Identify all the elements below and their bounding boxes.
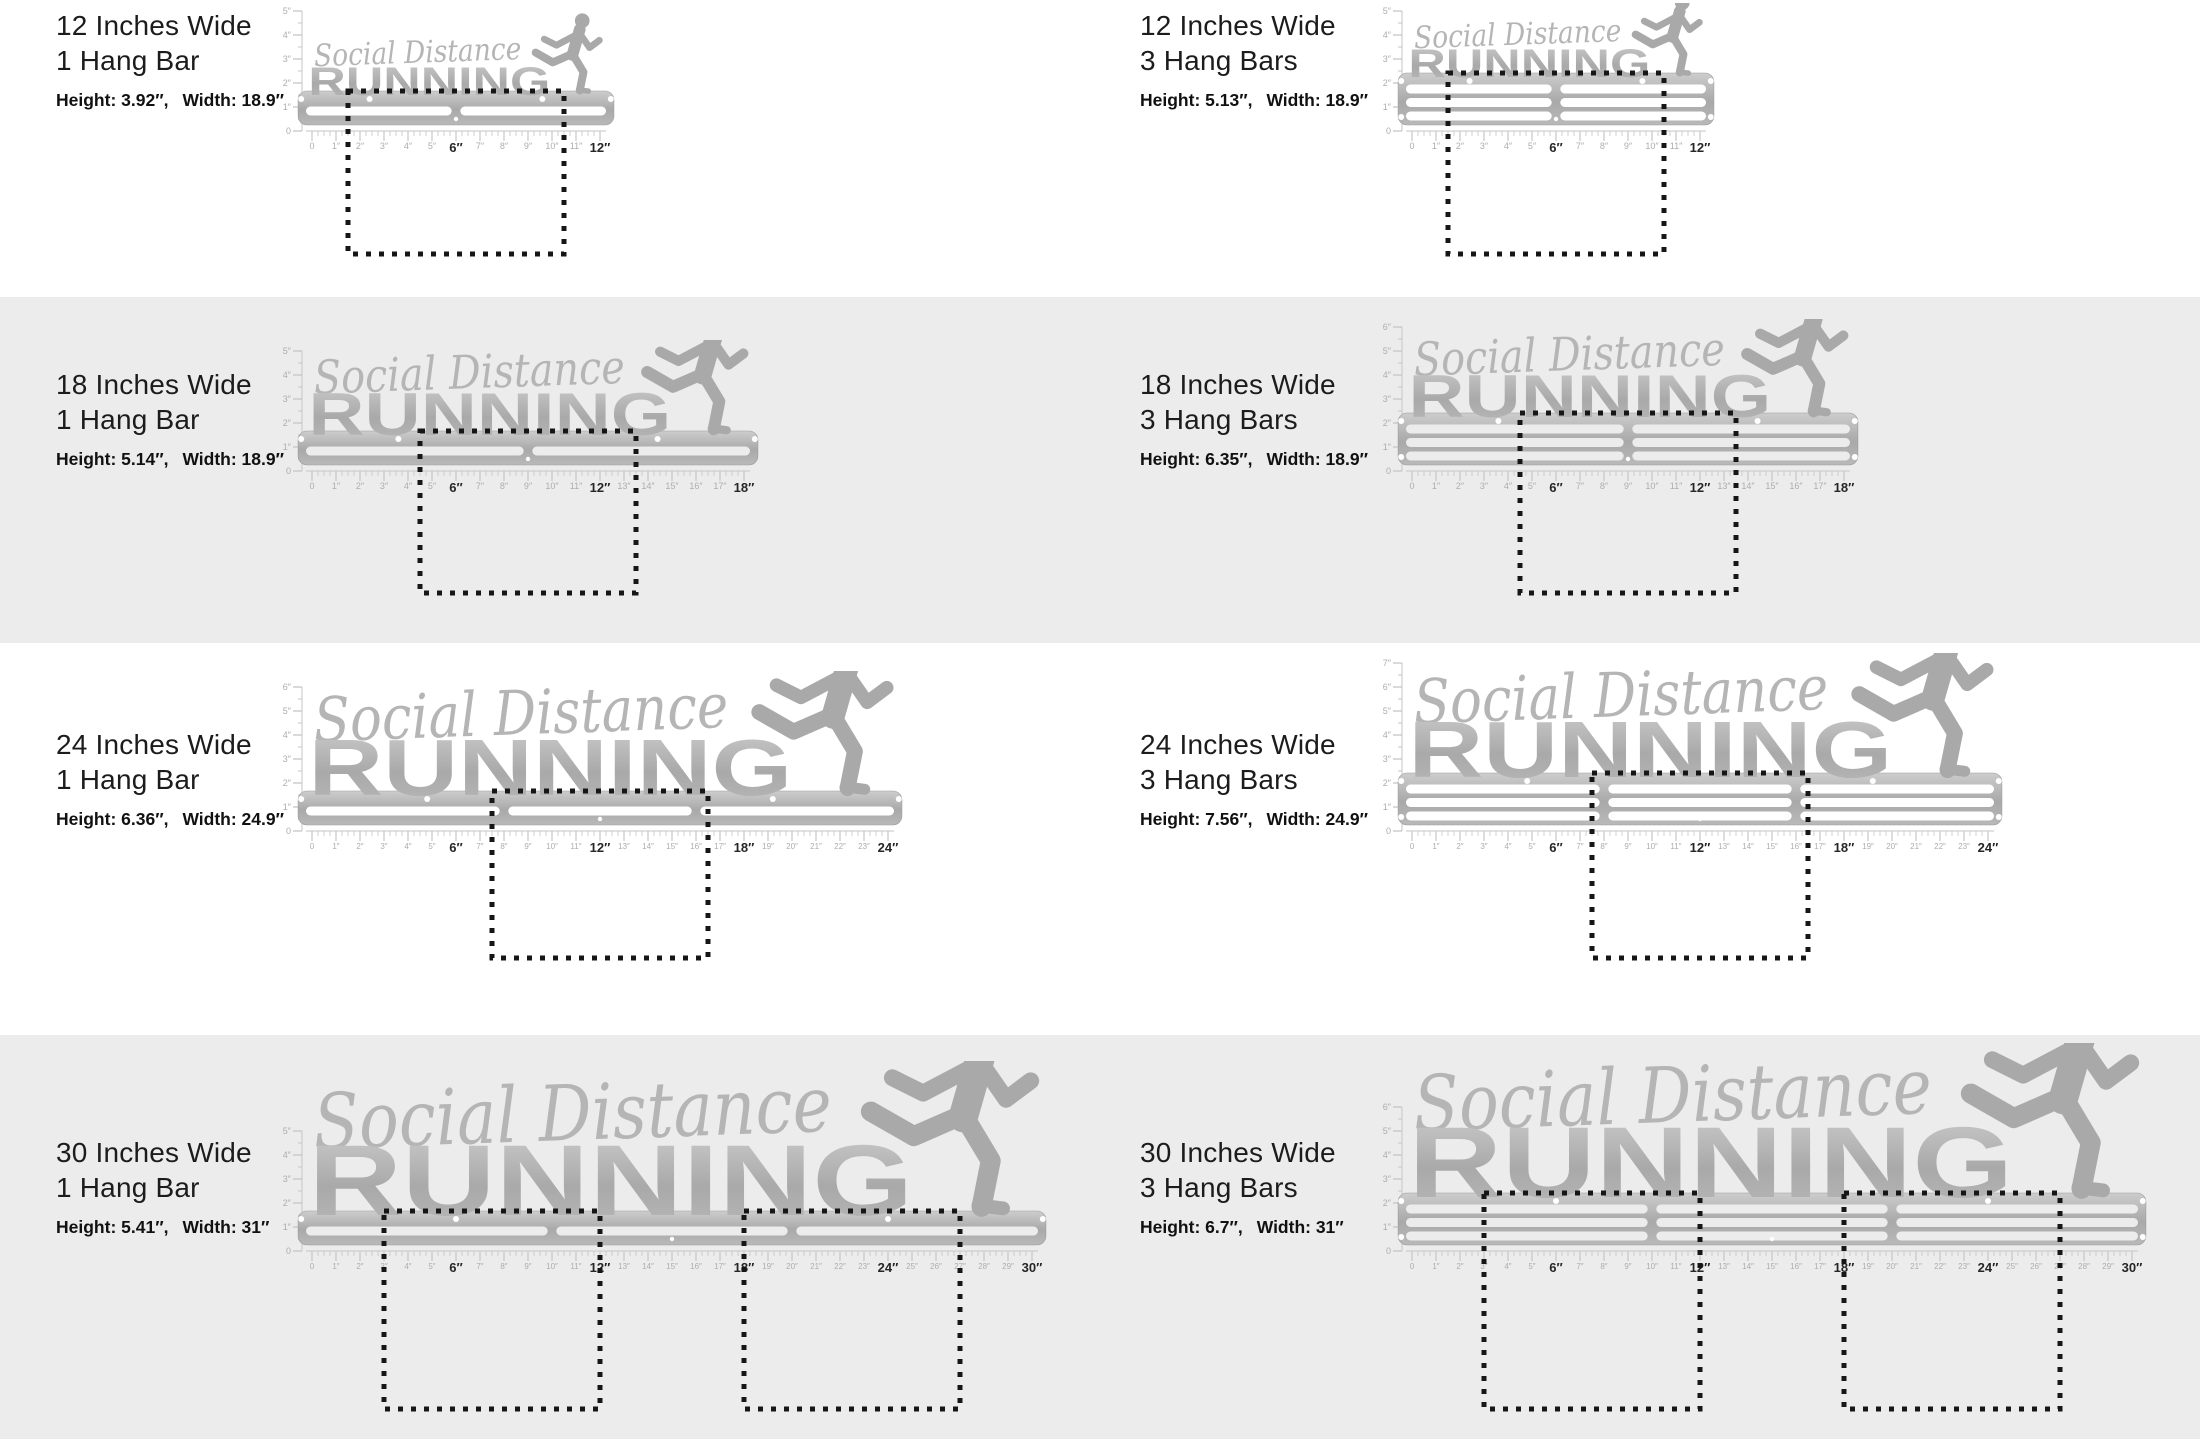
bars-title: 1 Hang Bar xyxy=(56,1170,269,1205)
svg-text:2″: 2″ xyxy=(1456,141,1465,151)
svg-text:15″: 15″ xyxy=(1766,1262,1778,1271)
svg-text:3″: 3″ xyxy=(1480,141,1489,151)
svg-text:15″: 15″ xyxy=(1766,842,1778,851)
svg-text:4″: 4″ xyxy=(1383,730,1392,740)
svg-text:7″: 7″ xyxy=(476,842,483,851)
svg-text:30″: 30″ xyxy=(1022,1260,1043,1275)
height-spec: Height: 5.14″, xyxy=(56,449,168,469)
svg-text:3″: 3″ xyxy=(1383,54,1392,64)
svg-text:21″: 21″ xyxy=(810,1262,822,1271)
svg-text:4″: 4″ xyxy=(1383,370,1392,380)
svg-text:6″: 6″ xyxy=(1383,322,1392,332)
svg-text:10″: 10″ xyxy=(546,1262,558,1271)
width-spec: Width: 18.9″ xyxy=(182,90,284,110)
bars-title: 3 Hang Bars xyxy=(1140,1170,1344,1205)
svg-text:24″: 24″ xyxy=(1978,1260,1999,1275)
svg-text:21″: 21″ xyxy=(810,842,822,851)
svg-text:8″: 8″ xyxy=(500,1262,507,1271)
svg-text:0: 0 xyxy=(1386,826,1391,836)
block-text: RUNNING xyxy=(1408,362,1771,430)
medal-hanger-diagram-24in-1bar: 01″2″3″4″5″6″Social DistanceRUNNING01″2″… xyxy=(272,671,928,972)
height-spec: Height: 5.13″, xyxy=(1140,90,1252,110)
svg-text:1″: 1″ xyxy=(1383,802,1392,812)
svg-text:26″: 26″ xyxy=(930,1262,942,1271)
dimension-spec: Height: 5.41″,Width: 31″ xyxy=(56,1217,269,1238)
dimension-spec: Height: 6.35″,Width: 18.9″ xyxy=(1140,449,1368,470)
svg-text:8″: 8″ xyxy=(1600,481,1609,491)
horizontal-ruler: 01″2″3″4″5″6″7″8″9″10″11″12″13″14″15″16″… xyxy=(1406,471,1854,495)
medal-hanger-diagram-18in-1bar: 01″2″3″4″5″Social DistanceRUNNING01″2″3″… xyxy=(272,340,784,607)
svg-text:23″: 23″ xyxy=(1958,842,1970,851)
medal-hanger-diagram-18in-3bar: 01″2″3″4″5″6″Social DistanceRUNNING01″2″… xyxy=(1372,319,1884,607)
svg-text:5″: 5″ xyxy=(283,1126,292,1136)
svg-text:2″: 2″ xyxy=(283,1198,292,1208)
svg-text:5″: 5″ xyxy=(283,6,292,16)
svg-text:2″: 2″ xyxy=(1456,842,1463,851)
svg-text:6″: 6″ xyxy=(449,1260,462,1275)
svg-text:24″: 24″ xyxy=(878,840,899,855)
svg-text:0: 0 xyxy=(309,481,314,491)
svg-text:8″: 8″ xyxy=(500,141,509,151)
block-text: RUNNING xyxy=(308,380,671,448)
svg-text:3″: 3″ xyxy=(283,394,292,404)
svg-text:13″: 13″ xyxy=(1718,1262,1730,1271)
svg-text:1″: 1″ xyxy=(283,802,292,812)
svg-text:5″: 5″ xyxy=(1383,1126,1392,1136)
svg-text:12″: 12″ xyxy=(590,480,611,495)
svg-text:3″: 3″ xyxy=(1383,1174,1392,1184)
svg-text:24″: 24″ xyxy=(1978,840,1999,855)
svg-text:17″: 17″ xyxy=(713,481,727,491)
svg-text:1″: 1″ xyxy=(332,141,341,151)
svg-text:1″: 1″ xyxy=(1383,442,1392,452)
svg-text:15″: 15″ xyxy=(666,1262,678,1271)
svg-text:8″: 8″ xyxy=(500,481,509,491)
svg-text:20″: 20″ xyxy=(1886,1262,1898,1271)
svg-text:0: 0 xyxy=(1386,126,1391,136)
svg-text:18″: 18″ xyxy=(734,480,755,495)
svg-text:3″: 3″ xyxy=(380,481,389,491)
svg-text:19″: 19″ xyxy=(762,1262,774,1271)
medal-hanger-diagram-30in-3bar: 01″2″3″4″5″6″Social DistanceRUNNING01″2″… xyxy=(1372,1043,2172,1423)
svg-text:0: 0 xyxy=(1410,842,1415,851)
svg-text:7″: 7″ xyxy=(476,1262,483,1271)
svg-text:1″: 1″ xyxy=(332,1262,339,1271)
svg-text:10″: 10″ xyxy=(546,842,558,851)
svg-text:18″: 18″ xyxy=(734,840,755,855)
svg-text:30″: 30″ xyxy=(2122,1260,2143,1275)
svg-text:0: 0 xyxy=(310,842,315,851)
row-band-1: 12 Inches Wide1 Hang BarHeight: 3.92″,Wi… xyxy=(0,0,2200,297)
svg-text:2″: 2″ xyxy=(356,1262,363,1271)
svg-text:11″: 11″ xyxy=(1670,1262,1681,1271)
svg-text:5″: 5″ xyxy=(1528,141,1537,151)
svg-text:21″: 21″ xyxy=(1910,1262,1922,1271)
block-text: RUNNING xyxy=(308,59,550,104)
svg-text:3″: 3″ xyxy=(380,141,389,151)
svg-text:5″: 5″ xyxy=(1528,481,1537,491)
svg-text:6″: 6″ xyxy=(1549,140,1562,155)
svg-text:3″: 3″ xyxy=(1480,481,1489,491)
svg-text:16″: 16″ xyxy=(1790,842,1802,851)
svg-text:1″: 1″ xyxy=(1432,842,1439,851)
svg-text:11″: 11″ xyxy=(1670,842,1681,851)
svg-text:3″: 3″ xyxy=(283,1174,292,1184)
svg-text:4″: 4″ xyxy=(283,370,292,380)
svg-text:1″: 1″ xyxy=(332,842,339,851)
width-spec: Width: 24.9″ xyxy=(182,809,284,829)
svg-text:17″: 17″ xyxy=(1813,481,1827,491)
svg-text:9″: 9″ xyxy=(1624,141,1633,151)
medal-hanger-diagram-12in-1bar: 01″2″3″4″5″Social DistanceRUNNING01″2″3″… xyxy=(272,3,640,268)
svg-text:5″: 5″ xyxy=(1528,1262,1535,1271)
height-spec: Height: 6.36″, xyxy=(56,809,168,829)
svg-text:6″: 6″ xyxy=(1383,682,1392,692)
bars-title: 1 Hang Bar xyxy=(56,43,284,78)
svg-text:8″: 8″ xyxy=(1600,1262,1607,1271)
svg-text:5″: 5″ xyxy=(428,1262,435,1271)
width-spec: Width: 18.9″ xyxy=(182,449,284,469)
svg-text:9″: 9″ xyxy=(524,481,533,491)
panel-label-12in-3bar: 12 Inches Wide3 Hang BarsHeight: 5.13″,W… xyxy=(1140,8,1368,111)
svg-text:14″: 14″ xyxy=(641,481,655,491)
svg-text:14″: 14″ xyxy=(642,842,654,851)
svg-text:4″: 4″ xyxy=(283,1150,292,1160)
svg-text:16″: 16″ xyxy=(1789,481,1803,491)
medal-hanger-diagram-12in-3bar: 01″2″3″4″5″Social DistanceRUNNING01″2″3″… xyxy=(1372,3,1740,268)
svg-text:11″: 11″ xyxy=(570,842,581,851)
size-title: 12 Inches Wide xyxy=(1140,8,1368,43)
row-band-2: 18 Inches Wide1 Hang BarHeight: 5.14″,Wi… xyxy=(0,297,2200,643)
svg-text:12″: 12″ xyxy=(1690,480,1711,495)
svg-text:28″: 28″ xyxy=(978,1262,990,1271)
horizontal-ruler: 01″2″3″4″5″6″7″8″9″10″11″12″13″14″15″16″… xyxy=(306,1251,1042,1275)
row-band-3: 24 Inches Wide1 Hang BarHeight: 6.36″,Wi… xyxy=(0,643,2200,1035)
svg-text:16″: 16″ xyxy=(689,481,703,491)
svg-text:4″: 4″ xyxy=(1504,481,1513,491)
svg-text:1″: 1″ xyxy=(332,481,341,491)
svg-text:16″: 16″ xyxy=(690,842,702,851)
svg-text:4″: 4″ xyxy=(404,1262,411,1271)
svg-text:5″: 5″ xyxy=(1383,6,1392,16)
svg-text:13″: 13″ xyxy=(1717,481,1731,491)
width-spec: Width: 31″ xyxy=(182,1217,269,1237)
svg-text:10″: 10″ xyxy=(1646,1262,1658,1271)
medal-hanger-diagram-30in-1bar: 01″2″3″4″5″Social DistanceRUNNING01″2″3″… xyxy=(272,1061,1072,1423)
svg-text:28″: 28″ xyxy=(2078,1262,2090,1271)
svg-text:8″: 8″ xyxy=(1600,842,1607,851)
svg-text:19″: 19″ xyxy=(1862,1262,1874,1271)
svg-text:5″: 5″ xyxy=(428,842,435,851)
svg-text:4″: 4″ xyxy=(283,30,292,40)
dimension-spec: Height: 5.13″,Width: 18.9″ xyxy=(1140,90,1368,111)
svg-text:11″: 11″ xyxy=(570,481,583,491)
width-spec: Width: 31″ xyxy=(1257,1217,1344,1237)
svg-text:1″: 1″ xyxy=(1383,102,1392,112)
svg-text:25″: 25″ xyxy=(906,1262,918,1271)
horizontal-ruler: 01″2″3″4″5″6″7″8″9″10″11″12″13″14″15″16″… xyxy=(1406,1251,2142,1275)
dimension-spec: Height: 6.7″,Width: 31″ xyxy=(1140,1217,1344,1238)
svg-text:18″: 18″ xyxy=(1834,840,1855,855)
svg-text:0: 0 xyxy=(1410,1262,1415,1271)
svg-text:0: 0 xyxy=(1409,141,1414,151)
svg-text:22″: 22″ xyxy=(1934,842,1946,851)
size-title: 18 Inches Wide xyxy=(56,367,284,402)
svg-text:12″: 12″ xyxy=(590,140,611,155)
svg-text:7″: 7″ xyxy=(1576,141,1585,151)
horizontal-ruler: 01″2″3″4″5″6″7″8″9″10″11″12″13″14″15″16″… xyxy=(1406,831,1998,855)
svg-text:13″: 13″ xyxy=(617,481,631,491)
dimension-spec: Height: 6.36″,Width: 24.9″ xyxy=(56,809,284,830)
svg-text:5″: 5″ xyxy=(1383,706,1392,716)
svg-text:3″: 3″ xyxy=(283,754,292,764)
svg-text:10″: 10″ xyxy=(1645,141,1659,151)
block-text: RUNNING xyxy=(1408,705,1892,795)
svg-text:2″: 2″ xyxy=(1383,418,1392,428)
svg-text:24″: 24″ xyxy=(878,1260,899,1275)
svg-text:2″: 2″ xyxy=(1456,1262,1463,1271)
svg-text:4″: 4″ xyxy=(404,141,413,151)
svg-text:17″: 17″ xyxy=(714,842,726,851)
size-title: 24 Inches Wide xyxy=(56,727,284,762)
bars-title: 1 Hang Bar xyxy=(56,402,284,437)
svg-text:6″: 6″ xyxy=(1549,840,1562,855)
svg-text:16″: 16″ xyxy=(1790,1262,1802,1271)
panel-label-24in-1bar: 24 Inches Wide1 Hang BarHeight: 6.36″,Wi… xyxy=(56,727,284,830)
svg-text:4″: 4″ xyxy=(1504,1262,1511,1271)
size-title: 30 Inches Wide xyxy=(56,1135,269,1170)
svg-text:14″: 14″ xyxy=(1742,1262,1754,1271)
svg-text:2″: 2″ xyxy=(283,418,292,428)
svg-text:6″: 6″ xyxy=(1383,1102,1392,1112)
svg-text:17″: 17″ xyxy=(1814,1262,1826,1271)
svg-text:23″: 23″ xyxy=(858,842,870,851)
svg-text:17″: 17″ xyxy=(714,1262,726,1271)
svg-text:20″: 20″ xyxy=(786,1262,798,1271)
svg-text:22″: 22″ xyxy=(1934,1262,1946,1271)
height-spec: Height: 5.41″, xyxy=(56,1217,168,1237)
svg-text:0: 0 xyxy=(1386,1246,1391,1256)
height-spec: Height: 6.7″, xyxy=(1140,1217,1243,1237)
svg-text:2″: 2″ xyxy=(1456,481,1465,491)
width-spec: Width: 18.9″ xyxy=(1266,449,1368,469)
svg-text:2″: 2″ xyxy=(283,778,292,788)
svg-text:2″: 2″ xyxy=(1383,778,1392,788)
size-comparison-sheet: 12 Inches Wide1 Hang BarHeight: 3.92″,Wi… xyxy=(0,0,2200,1439)
svg-text:11″: 11″ xyxy=(1670,141,1683,151)
svg-text:6″: 6″ xyxy=(1549,1260,1562,1275)
svg-text:3″: 3″ xyxy=(1480,842,1487,851)
svg-text:19″: 19″ xyxy=(1862,842,1874,851)
svg-text:13″: 13″ xyxy=(1718,842,1730,851)
svg-text:7″: 7″ xyxy=(1576,481,1585,491)
svg-text:0: 0 xyxy=(286,826,291,836)
svg-text:4″: 4″ xyxy=(1383,1150,1392,1160)
svg-text:9″: 9″ xyxy=(524,141,533,151)
svg-text:10″: 10″ xyxy=(1645,481,1659,491)
svg-text:4″: 4″ xyxy=(404,481,413,491)
height-spec: Height: 7.56″, xyxy=(1140,809,1252,829)
svg-text:5″: 5″ xyxy=(428,141,437,151)
svg-text:5″: 5″ xyxy=(1383,346,1392,356)
svg-text:1″: 1″ xyxy=(283,102,292,112)
block-text: RUNNING xyxy=(308,1125,913,1237)
block-text: RUNNING xyxy=(308,723,792,813)
panel-label-18in-1bar: 18 Inches Wide1 Hang BarHeight: 5.14″,Wi… xyxy=(56,367,284,470)
svg-text:10″: 10″ xyxy=(545,481,559,491)
svg-text:8″: 8″ xyxy=(500,842,507,851)
svg-text:15″: 15″ xyxy=(1765,481,1779,491)
svg-text:13″: 13″ xyxy=(618,1262,630,1271)
bars-title: 1 Hang Bar xyxy=(56,762,284,797)
svg-text:11″: 11″ xyxy=(1670,481,1683,491)
svg-text:7″: 7″ xyxy=(476,141,485,151)
dimension-spec: Height: 5.14″,Width: 18.9″ xyxy=(56,449,284,470)
svg-text:7″: 7″ xyxy=(1383,658,1392,668)
svg-text:1″: 1″ xyxy=(1432,1262,1439,1271)
svg-text:7″: 7″ xyxy=(1576,1262,1583,1271)
svg-text:10″: 10″ xyxy=(545,141,559,151)
svg-text:4″: 4″ xyxy=(1383,30,1392,40)
svg-text:9″: 9″ xyxy=(1624,481,1633,491)
block-text: RUNNING xyxy=(1408,41,1650,86)
size-title: 18 Inches Wide xyxy=(1140,367,1368,402)
svg-text:22″: 22″ xyxy=(834,1262,846,1271)
svg-text:0: 0 xyxy=(309,141,314,151)
svg-text:6″: 6″ xyxy=(283,682,292,692)
svg-text:2″: 2″ xyxy=(283,78,292,88)
svg-text:20″: 20″ xyxy=(786,842,798,851)
panel-label-24in-3bar: 24 Inches Wide3 Hang BarsHeight: 7.56″,W… xyxy=(1140,727,1368,830)
svg-text:3″: 3″ xyxy=(283,54,292,64)
panel-label-30in-3bar: 30 Inches Wide3 Hang BarsHeight: 6.7″,Wi… xyxy=(1140,1135,1344,1238)
svg-text:5″: 5″ xyxy=(283,706,292,716)
bars-title: 3 Hang Bars xyxy=(1140,762,1368,797)
height-spec: Height: 6.35″, xyxy=(1140,449,1252,469)
svg-text:2″: 2″ xyxy=(1383,78,1392,88)
svg-text:11″: 11″ xyxy=(570,1262,581,1271)
panel-label-12in-1bar: 12 Inches Wide1 Hang BarHeight: 3.92″,Wi… xyxy=(56,8,284,111)
dimension-spec: Height: 7.56″,Width: 24.9″ xyxy=(1140,809,1368,830)
size-title: 30 Inches Wide xyxy=(1140,1135,1344,1170)
height-spec: Height: 3.92″, xyxy=(56,90,168,110)
svg-text:6″: 6″ xyxy=(1549,480,1562,495)
svg-text:2″: 2″ xyxy=(356,141,365,151)
svg-text:4″: 4″ xyxy=(404,842,411,851)
svg-text:20″: 20″ xyxy=(1886,842,1898,851)
svg-text:12″: 12″ xyxy=(590,840,611,855)
size-title: 24 Inches Wide xyxy=(1140,727,1368,762)
svg-text:7″: 7″ xyxy=(1576,842,1583,851)
svg-text:0: 0 xyxy=(310,1262,315,1271)
svg-text:23″: 23″ xyxy=(1958,1262,1970,1271)
svg-text:0: 0 xyxy=(286,126,291,136)
medal-hanger-diagram-24in-3bar: 01″2″3″4″5″6″7″Social DistanceRUNNING01″… xyxy=(1372,653,2028,972)
svg-text:12″: 12″ xyxy=(1690,140,1711,155)
svg-text:23″: 23″ xyxy=(858,1262,870,1271)
horizontal-ruler: 01″2″3″4″5″6″7″8″9″10″11″12″13″14″15″16″… xyxy=(306,831,898,855)
svg-text:4″: 4″ xyxy=(283,730,292,740)
svg-text:18″: 18″ xyxy=(1834,480,1855,495)
svg-text:1″: 1″ xyxy=(1432,481,1441,491)
svg-text:0: 0 xyxy=(1409,481,1414,491)
svg-text:9″: 9″ xyxy=(524,842,531,851)
svg-text:1″: 1″ xyxy=(283,1222,292,1232)
svg-text:17″: 17″ xyxy=(1814,842,1826,851)
width-spec: Width: 18.9″ xyxy=(1266,90,1368,110)
bars-title: 3 Hang Bars xyxy=(1140,402,1368,437)
svg-text:9″: 9″ xyxy=(1624,842,1631,851)
svg-text:14″: 14″ xyxy=(1742,842,1754,851)
svg-text:7″: 7″ xyxy=(476,481,485,491)
svg-text:22″: 22″ xyxy=(834,842,846,851)
size-title: 12 Inches Wide xyxy=(56,8,284,43)
svg-text:0: 0 xyxy=(286,1246,291,1256)
svg-text:3″: 3″ xyxy=(1383,394,1392,404)
svg-text:14″: 14″ xyxy=(1741,481,1755,491)
svg-text:4″: 4″ xyxy=(1504,141,1513,151)
width-spec: Width: 24.9″ xyxy=(1266,809,1368,829)
dimension-spec: Height: 3.92″,Width: 18.9″ xyxy=(56,90,284,111)
panel-label-18in-3bar: 18 Inches Wide3 Hang BarsHeight: 6.35″,W… xyxy=(1140,367,1368,470)
svg-text:1″: 1″ xyxy=(283,442,292,452)
row-band-4: 30 Inches Wide1 Hang BarHeight: 5.41″,Wi… xyxy=(0,1035,2200,1439)
horizontal-ruler: 01″2″3″4″5″6″7″8″9″10″11″12″13″14″15″16″… xyxy=(306,471,754,495)
svg-text:2″: 2″ xyxy=(356,842,363,851)
svg-text:25″: 25″ xyxy=(2006,1262,2018,1271)
svg-text:19″: 19″ xyxy=(762,842,774,851)
svg-text:12″: 12″ xyxy=(1690,840,1711,855)
svg-text:6″: 6″ xyxy=(449,480,462,495)
svg-text:4″: 4″ xyxy=(1504,842,1511,851)
svg-text:15″: 15″ xyxy=(665,481,679,491)
svg-text:26″: 26″ xyxy=(2030,1262,2042,1271)
svg-text:8″: 8″ xyxy=(1600,141,1609,151)
svg-text:6″: 6″ xyxy=(449,140,462,155)
svg-text:1″: 1″ xyxy=(1383,1222,1392,1232)
svg-text:2″: 2″ xyxy=(1383,1198,1392,1208)
svg-text:0: 0 xyxy=(1386,466,1391,476)
svg-text:11″: 11″ xyxy=(570,141,583,151)
panel-label-30in-1bar: 30 Inches Wide1 Hang BarHeight: 5.41″,Wi… xyxy=(56,1135,269,1238)
svg-text:6″: 6″ xyxy=(449,840,462,855)
svg-text:2″: 2″ xyxy=(356,481,365,491)
svg-text:3″: 3″ xyxy=(1383,754,1392,764)
svg-text:9″: 9″ xyxy=(524,1262,531,1271)
svg-text:10″: 10″ xyxy=(1646,842,1658,851)
svg-text:29″: 29″ xyxy=(2102,1262,2114,1271)
svg-text:21″: 21″ xyxy=(1910,842,1922,851)
svg-text:5″: 5″ xyxy=(428,481,437,491)
svg-text:9″: 9″ xyxy=(1624,1262,1631,1271)
bars-title: 3 Hang Bars xyxy=(1140,43,1368,78)
svg-text:5″: 5″ xyxy=(283,346,292,356)
svg-text:1″: 1″ xyxy=(1432,141,1441,151)
svg-text:14″: 14″ xyxy=(642,1262,654,1271)
svg-text:0: 0 xyxy=(286,466,291,476)
svg-text:16″: 16″ xyxy=(690,1262,702,1271)
svg-text:5″: 5″ xyxy=(1528,842,1535,851)
svg-text:3″: 3″ xyxy=(380,842,387,851)
svg-text:29″: 29″ xyxy=(1002,1262,1014,1271)
svg-text:15″: 15″ xyxy=(666,842,678,851)
svg-text:13″: 13″ xyxy=(618,842,630,851)
block-text: RUNNING xyxy=(1408,1107,2013,1219)
